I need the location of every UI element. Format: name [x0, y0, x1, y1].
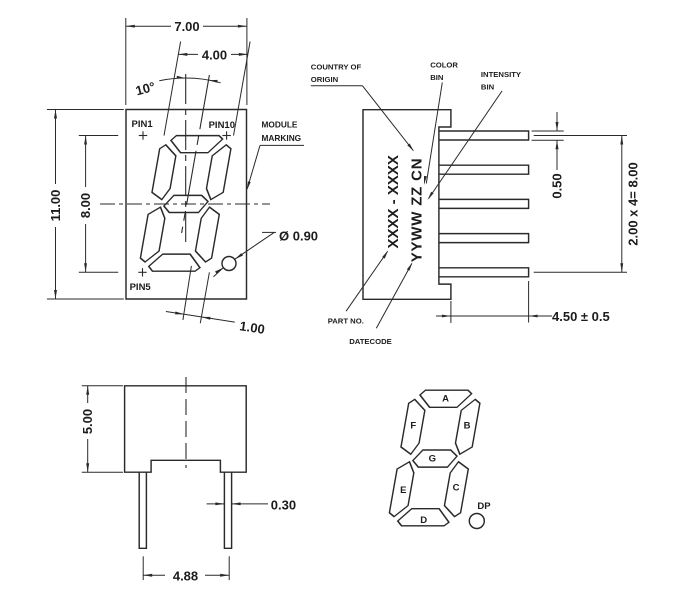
svg-text:ORIGIN: ORIGIN	[311, 75, 339, 84]
svg-text:A: A	[442, 393, 449, 404]
svg-text:4.00: 4.00	[202, 48, 227, 63]
svg-text:PART NO.: PART NO.	[328, 317, 364, 326]
svg-text:C: C	[453, 483, 460, 494]
svg-text:MODULE: MODULE	[262, 120, 298, 130]
svg-text:0.30: 0.30	[271, 498, 296, 513]
svg-text:11.00: 11.00	[48, 190, 63, 222]
svg-text:D: D	[420, 515, 427, 526]
svg-text:Ø 0.90: Ø 0.90	[279, 229, 318, 244]
svg-text:10°: 10°	[134, 79, 157, 99]
svg-text:8.00: 8.00	[78, 193, 93, 218]
svg-text:COUNTRY OF: COUNTRY OF	[311, 63, 362, 72]
svg-text:PIN10: PIN10	[209, 120, 235, 131]
svg-text:PIN5: PIN5	[130, 282, 152, 293]
svg-text:BIN: BIN	[481, 83, 495, 92]
svg-text:YYWW ZZ CN: YYWW ZZ CN	[409, 158, 426, 263]
svg-text:F: F	[410, 420, 416, 431]
svg-text:5.00: 5.00	[80, 409, 95, 434]
svg-text:BIN: BIN	[430, 73, 444, 82]
svg-text:E: E	[400, 485, 406, 496]
svg-text:COLOR: COLOR	[430, 60, 458, 69]
svg-text:1.00: 1.00	[239, 318, 266, 337]
svg-text:XXXX - XXXX: XXXX - XXXX	[385, 155, 402, 248]
svg-text:7.00: 7.00	[174, 19, 199, 34]
svg-text:DP: DP	[477, 501, 491, 512]
svg-text:PIN1: PIN1	[132, 119, 154, 130]
svg-text:DATECODE: DATECODE	[349, 337, 392, 346]
svg-text:MARKING: MARKING	[262, 133, 302, 143]
svg-text:2.00 x 4= 8.00: 2.00 x 4= 8.00	[626, 162, 641, 246]
svg-text:0.50: 0.50	[550, 173, 565, 198]
svg-text:4.88: 4.88	[173, 568, 198, 583]
svg-text:B: B	[464, 421, 471, 432]
svg-text:INTENSITY: INTENSITY	[481, 70, 521, 79]
svg-text:G: G	[429, 454, 436, 465]
svg-text:4.50 ± 0.5: 4.50 ± 0.5	[552, 309, 610, 324]
